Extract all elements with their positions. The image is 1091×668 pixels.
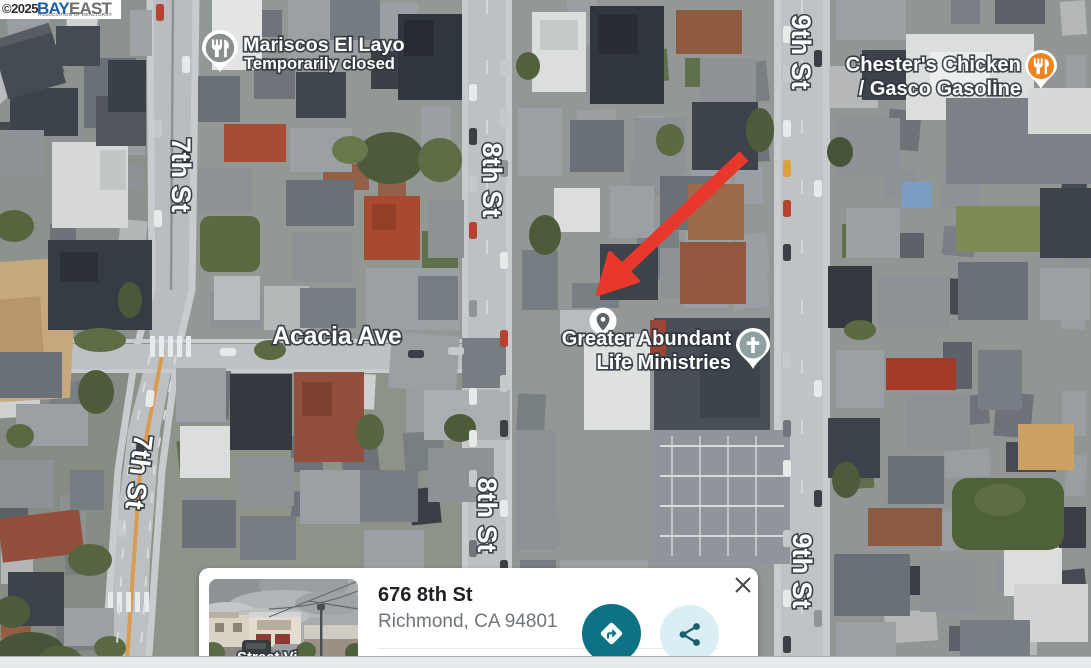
svg-text:Acacia Ave: Acacia Ave xyxy=(272,323,401,350)
svg-text:/ Gasco Gasoline: / Gasco Gasoline xyxy=(859,78,1021,100)
svg-text:8th St: 8th St xyxy=(472,477,502,552)
svg-text:Mariscos El Layo: Mariscos El Layo xyxy=(243,34,405,56)
svg-text:Greater Abundant: Greater Abundant xyxy=(562,328,732,350)
svg-text:7th St: 7th St xyxy=(166,137,196,212)
svg-text:Temporarily closed: Temporarily closed xyxy=(244,54,395,73)
svg-text:8th St: 8th St xyxy=(477,142,507,217)
svg-text:9th St: 9th St xyxy=(786,14,816,89)
svg-text:Life Ministries: Life Ministries xyxy=(597,352,731,374)
svg-text:9th St: 9th St xyxy=(787,533,817,608)
svg-text:Chester's Chicken: Chester's Chicken xyxy=(846,54,1021,76)
